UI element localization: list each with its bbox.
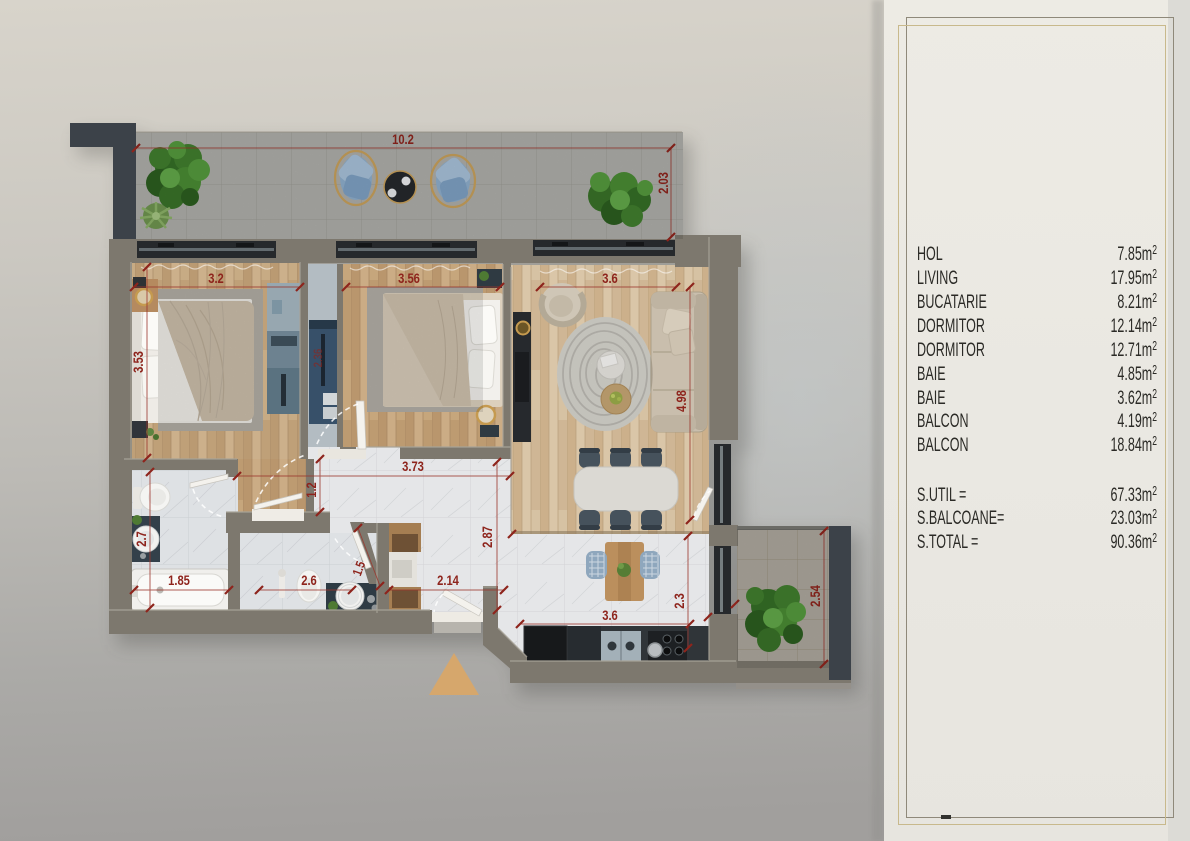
svg-text:2.36: 2.36	[312, 349, 325, 368]
svg-text:2.7: 2.7	[134, 531, 149, 547]
svg-text:3.56: 3.56	[398, 271, 420, 286]
svg-text:S.BALCOANE=: S.BALCOANE=	[917, 507, 1004, 528]
svg-text:BALCON: BALCON	[917, 434, 969, 455]
svg-text:3.2: 3.2	[208, 271, 224, 286]
svg-text:BAIE: BAIE	[917, 387, 946, 408]
svg-text:2.87: 2.87	[480, 526, 495, 548]
svg-text:90.36m2: 90.36m2	[1110, 531, 1157, 552]
svg-text:4.85m2: 4.85m2	[1117, 363, 1157, 384]
svg-text:17.95m2: 17.95m2	[1110, 267, 1157, 288]
svg-text:67.33m2: 67.33m2	[1110, 484, 1157, 505]
svg-text:23.03m2: 23.03m2	[1110, 507, 1157, 528]
svg-text:12.14m2: 12.14m2	[1110, 315, 1157, 336]
svg-text:HOL: HOL	[917, 243, 943, 264]
svg-text:1.2: 1.2	[304, 482, 319, 498]
svg-text:4.98: 4.98	[674, 390, 689, 412]
svg-text:S.UTIL =: S.UTIL =	[917, 484, 966, 505]
svg-text:S.TOTAL =: S.TOTAL =	[917, 531, 978, 552]
svg-text:2.14: 2.14	[437, 573, 459, 588]
svg-text:7.85m2: 7.85m2	[1117, 243, 1157, 264]
svg-text:BAIE: BAIE	[917, 363, 946, 384]
svg-text:2.3: 2.3	[672, 593, 687, 609]
svg-text:3.6: 3.6	[602, 608, 618, 623]
svg-text:8.21m2: 8.21m2	[1117, 291, 1157, 312]
svg-text:BALCON: BALCON	[917, 410, 969, 431]
svg-text:BUCATARIE: BUCATARIE	[917, 291, 987, 312]
svg-text:18.84m2: 18.84m2	[1110, 434, 1157, 455]
svg-text:12.71m2: 12.71m2	[1110, 339, 1157, 360]
svg-text:DORMITOR: DORMITOR	[917, 339, 985, 360]
svg-text:3.53: 3.53	[131, 351, 146, 373]
svg-text:LIVING: LIVING	[917, 267, 958, 288]
svg-text:4.19m2: 4.19m2	[1117, 410, 1157, 431]
svg-text:3.6: 3.6	[602, 271, 618, 286]
svg-text:1.85: 1.85	[168, 573, 190, 588]
svg-text:DORMITOR: DORMITOR	[917, 315, 985, 336]
svg-text:3.73: 3.73	[402, 459, 424, 474]
svg-text:2.6: 2.6	[301, 573, 317, 588]
svg-text:3.62m2: 3.62m2	[1117, 387, 1157, 408]
